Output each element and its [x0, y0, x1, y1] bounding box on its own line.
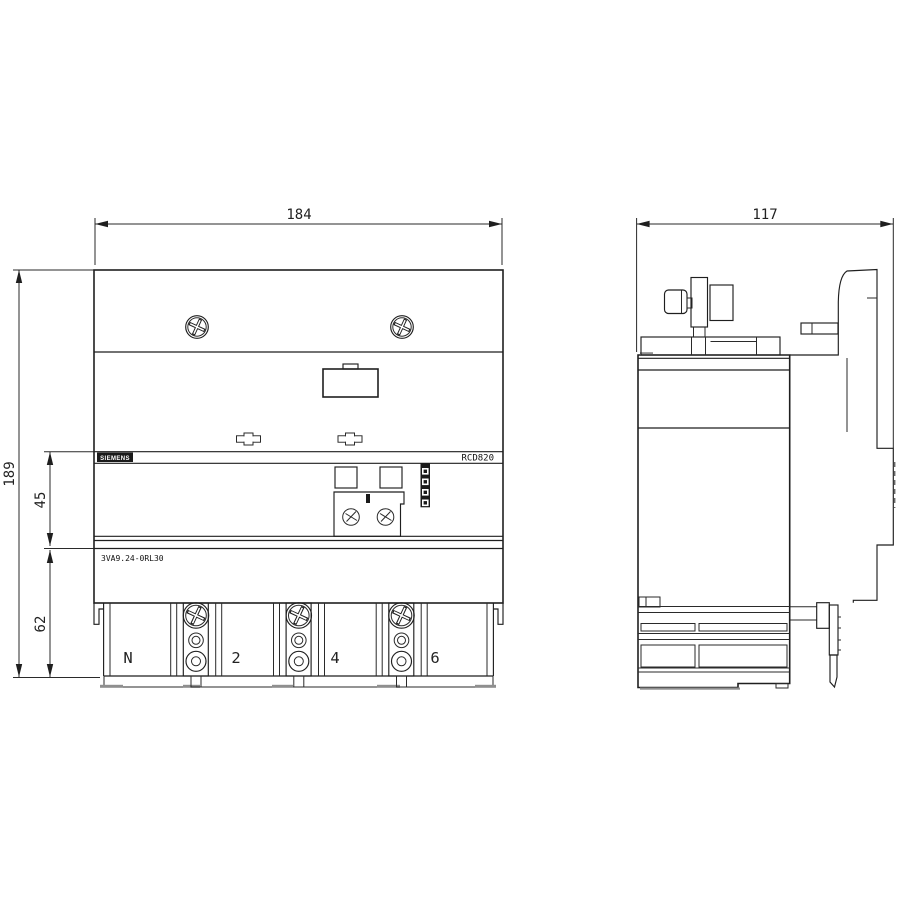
side-view: 117	[637, 207, 895, 690]
dim-depth-117: 117	[637, 207, 894, 448]
front-view: 184 189 45 62	[2, 207, 503, 688]
fastener-icon-left	[237, 433, 261, 445]
side-terminal-screw	[665, 278, 734, 338]
dim-label-depth: 117	[752, 207, 777, 223]
module-body	[638, 352, 790, 690]
terminal-label-2: 2	[231, 649, 240, 667]
breaker-profile	[790, 270, 895, 688]
dim-lower-62: 62	[33, 550, 53, 677]
terminal-label-n: N	[123, 649, 132, 667]
dim-height-189: 189	[2, 270, 100, 678]
mounting-screw-right	[391, 316, 414, 339]
terminal-label-6: 6	[430, 649, 439, 667]
brand-badge: SIEMENS	[97, 453, 133, 463]
terminal-block-3	[376, 603, 427, 687]
aux-connector	[334, 467, 404, 536]
terminal-block-1	[171, 603, 222, 687]
fastener-icon-right	[338, 433, 362, 445]
connector-screw-right	[377, 509, 394, 526]
technical-drawing-canvas: 184 189 45 62	[0, 0, 900, 900]
terminal-label-4: 4	[330, 649, 339, 667]
brand-label: SIEMENS	[100, 456, 130, 462]
module-top-bar	[641, 337, 780, 355]
dim-width-184: 184	[95, 207, 502, 265]
dimension-drawing-page: 184 189 45 62	[0, 0, 900, 900]
model-label: RCD820	[461, 454, 494, 464]
mounting-screw-left	[186, 316, 209, 339]
led-indicator-strip	[421, 463, 431, 507]
dim-label-upper: 45	[33, 492, 49, 509]
dim-label-height: 189	[2, 461, 18, 486]
dim-upper-45: 45	[33, 452, 94, 549]
dim-label-lower: 62	[33, 616, 49, 633]
terminal-block-2	[274, 603, 325, 687]
handle-window	[323, 364, 378, 397]
dim-label-width: 184	[286, 207, 311, 223]
part-number-label: 3VA9.24-0RL30	[101, 554, 164, 563]
connector-screw-left	[343, 509, 360, 526]
